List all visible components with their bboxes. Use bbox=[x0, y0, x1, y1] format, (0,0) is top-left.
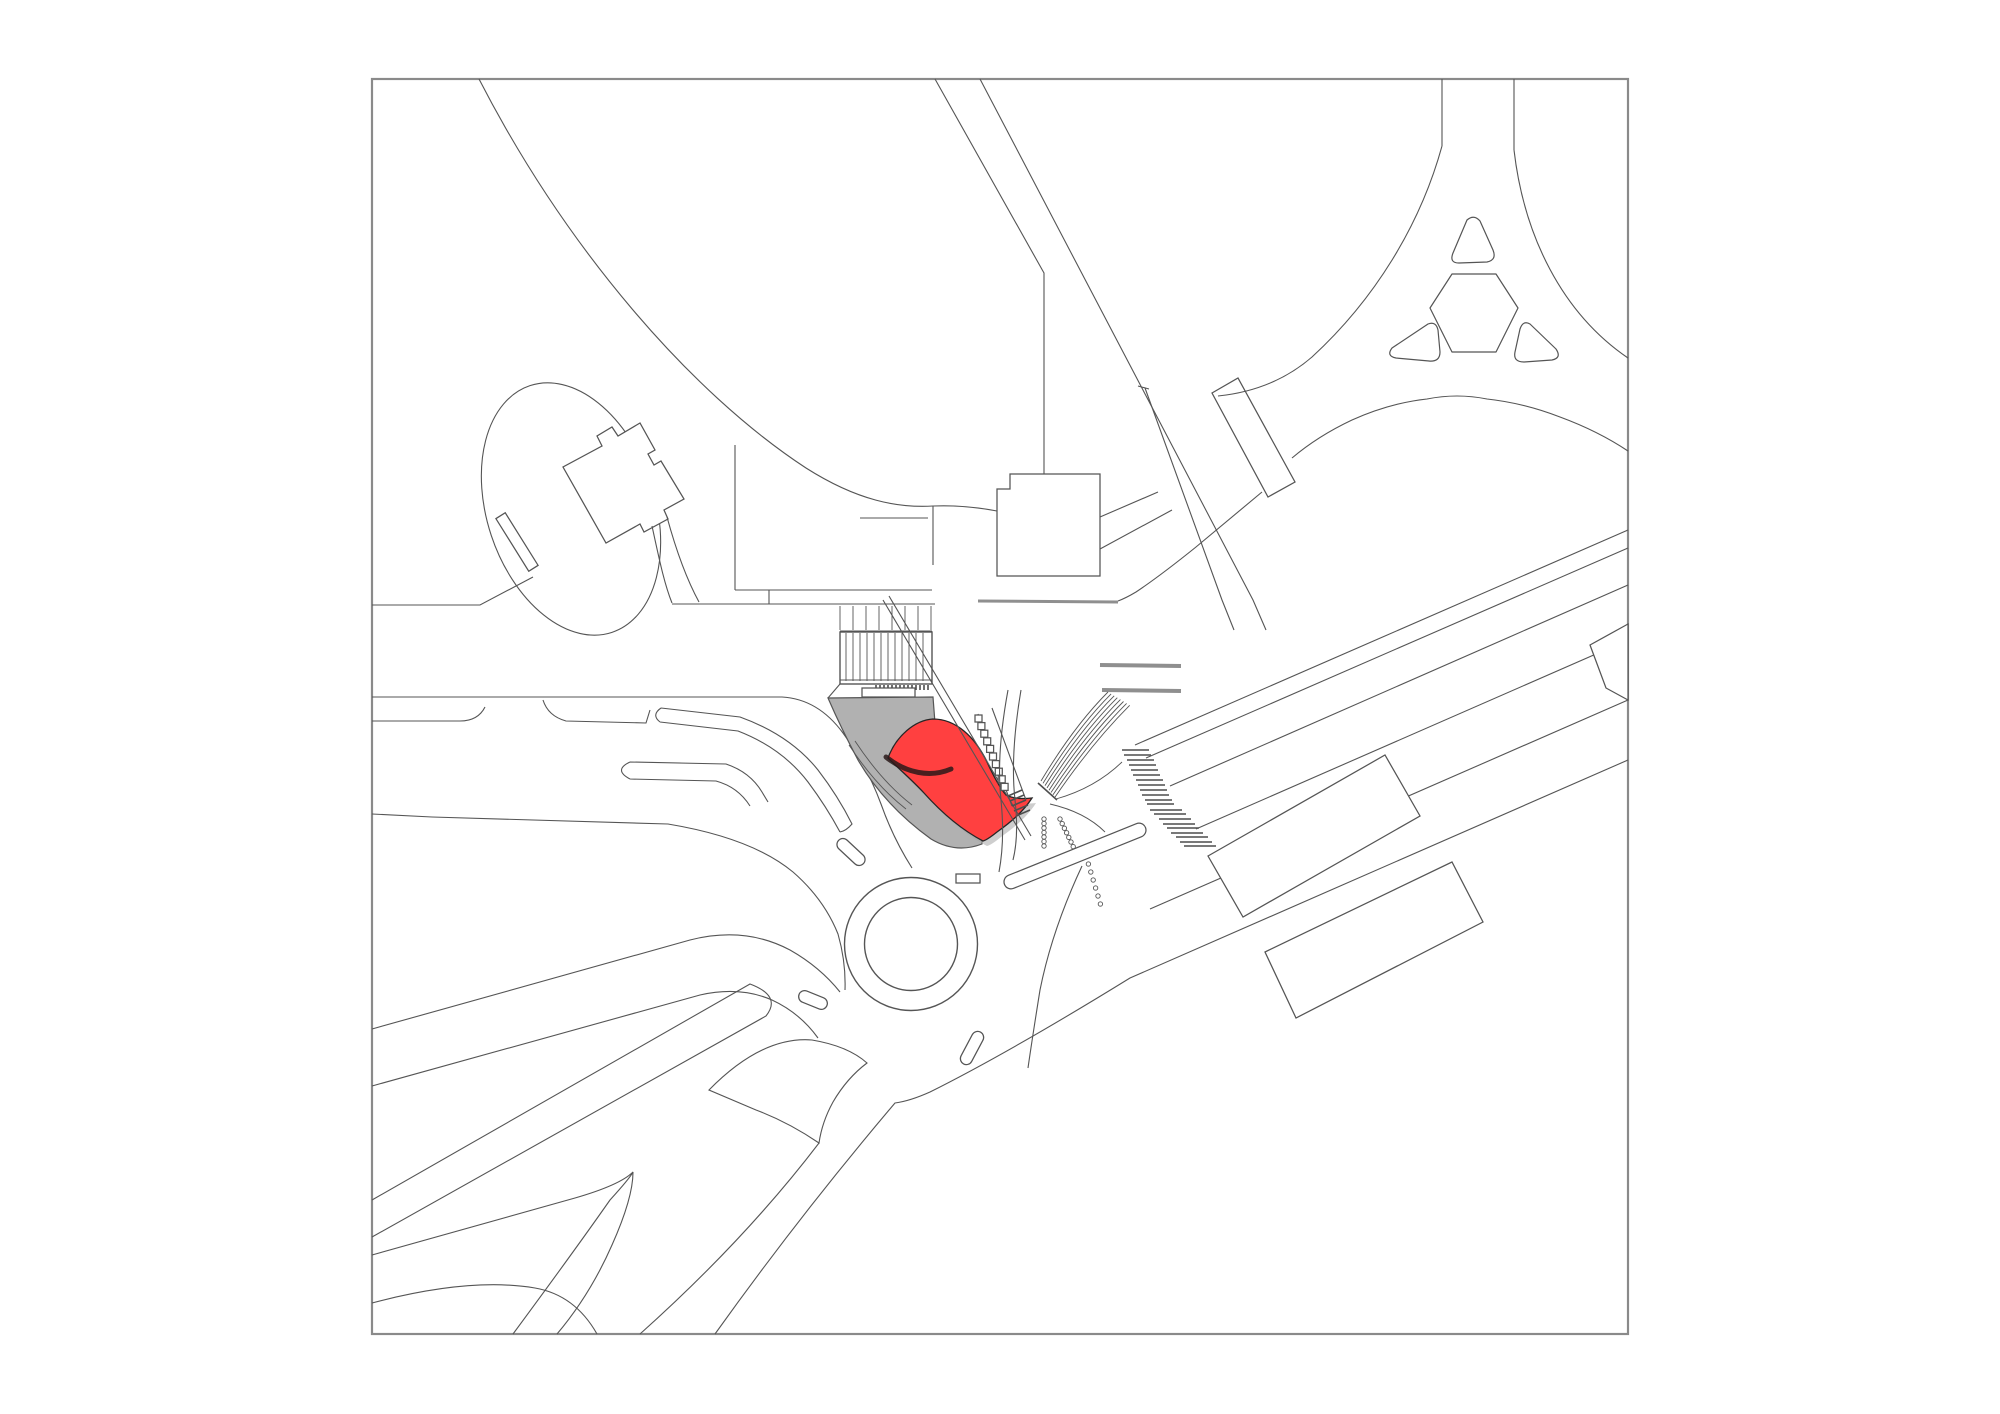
roundabout-inner-circle bbox=[865, 898, 958, 991]
dot-row-b bbox=[1058, 817, 1076, 849]
path-to-stairs bbox=[652, 517, 699, 603]
median-stub-s bbox=[958, 1029, 985, 1066]
se-buildings bbox=[1208, 624, 1628, 1018]
west-pill-median bbox=[622, 762, 769, 806]
plaza-slab bbox=[956, 874, 980, 883]
triangle-island-left bbox=[1390, 323, 1440, 361]
walkway-band bbox=[1100, 492, 1172, 549]
dot-row-a bbox=[1042, 817, 1046, 848]
median-stub-nw bbox=[834, 836, 867, 868]
se-road-bundle bbox=[715, 530, 1628, 1334]
square-building-north bbox=[997, 474, 1100, 576]
leaf-sliver-island bbox=[513, 1172, 633, 1334]
se-building-edge bbox=[1590, 624, 1628, 700]
platform-walls bbox=[978, 601, 1181, 691]
grass-slivers bbox=[513, 1040, 867, 1334]
arc-fan bbox=[1038, 692, 1130, 832]
terrace-and-stairs bbox=[672, 445, 935, 698]
upper-stair-treads bbox=[840, 606, 931, 630]
dot-row-c bbox=[1084, 854, 1103, 906]
west-roads bbox=[372, 577, 912, 990]
trident-roundabout bbox=[1218, 79, 1628, 458]
triangle-island-right bbox=[1515, 323, 1559, 362]
site-plan-page bbox=[0, 0, 2000, 1414]
plan-border bbox=[372, 79, 1628, 1334]
fin-island bbox=[709, 1040, 867, 1143]
lower-stair-treads bbox=[840, 633, 932, 681]
west-median bbox=[656, 708, 852, 832]
north-buildings bbox=[997, 378, 1295, 601]
rotated-square-building bbox=[563, 423, 699, 603]
lower-stair-box bbox=[840, 632, 932, 684]
angled-bar-building bbox=[1212, 378, 1295, 497]
sw-road bbox=[372, 935, 840, 1334]
zebra-crossing-lower bbox=[1150, 810, 1216, 846]
park-sweep-curve bbox=[479, 79, 997, 565]
hexagon-island bbox=[1430, 274, 1518, 352]
south-road-west-edge bbox=[640, 1143, 819, 1334]
site-plan-svg bbox=[0, 0, 2000, 1414]
zebra-crossing-upper bbox=[1122, 750, 1174, 804]
stair-landing bbox=[862, 688, 915, 697]
triangle-island-top bbox=[1452, 217, 1494, 263]
median-stub-w bbox=[797, 989, 829, 1011]
